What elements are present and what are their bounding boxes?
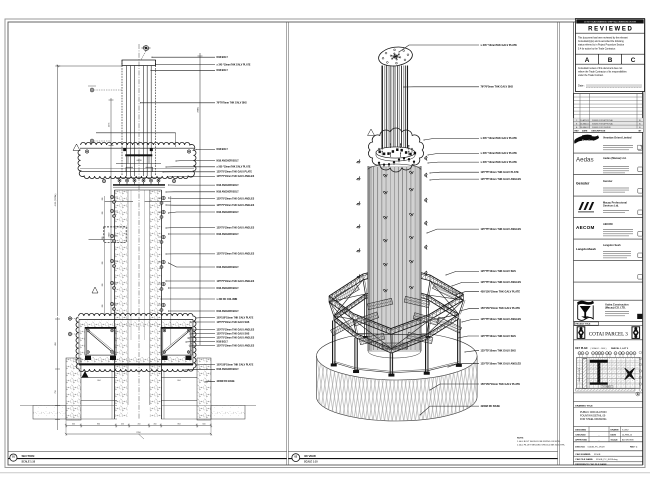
svg-text:125*75*10mm THK GALV ANGLES: 125*75*10mm THK GALV ANGLES (217, 175, 255, 178)
svg-text:DO NOT SCALE DRAWINGS. VERIFY: DO NOT SCALE DRAWINGS. VERIFY ALL DIMENS… (584, 20, 637, 23)
svg-text:4-M16: 4-M16 (136, 160, 141, 162)
svg-text:SL: SL (639, 123, 641, 125)
svg-text:Gensler: Gensler (576, 182, 590, 186)
svg-text:125*75*10mm THK GALV ANGLES: 125*75*10mm THK GALV ANGLES (217, 344, 255, 347)
svg-text:LangdonSeah: LangdonSeah (576, 247, 596, 251)
svg-text:KEY PLAN: KEY PLAN (575, 347, 587, 350)
svg-text:864: 864 (97, 380, 100, 382)
svg-text:150*150*10mm THK GALV PLATE: 150*150*10mm THK GALV PLATE (217, 363, 254, 366)
svg-text:PUBLIC CIRCULATION: PUBLIC CIRCULATION (580, 411, 607, 414)
svg-text:CAD NUMBER:: CAD NUMBER: (575, 453, 591, 456)
svg-text:M16 ANCHOR BOLT: M16 ANCHOR BOLT (217, 266, 240, 269)
svg-text:M16 ANCHOR BOLT: M16 ANCHOR BOLT (217, 310, 240, 313)
svg-text:5150B_PC_8V09: 5150B_PC_8V09 (588, 447, 606, 449)
svg-text:450: 450 (55, 342, 57, 345)
svg-text:FOR STEEL DRAWING: FOR STEEL DRAWING (580, 418, 607, 421)
svg-text:125*75*10mm THK GALV ANGLES: 125*75*10mm THK GALV ANGLES (481, 363, 522, 366)
svg-text:125*75*10mm THK GALV PLATE: 125*75*10mm THK GALV PLATE (217, 171, 253, 174)
svg-text:125*75*10mm THK GALV ANGLES: 125*75*10mm THK GALV ANGLES (217, 197, 255, 200)
svg-text:ISSUED FOR APPROVAL: ISSUED FOR APPROVAL (592, 122, 613, 125)
svg-text:ISSUED FOR APPROVAL: ISSUED FOR APPROVAL (592, 119, 613, 122)
svg-text:M16 ANCHOR BOLT: M16 ANCHOR BOLT (217, 287, 240, 290)
svg-text:125*75*10mm THK GALV ANGLES: 125*75*10mm THK GALV ANGLES (217, 336, 255, 339)
svg-text:(TBB): (TBB) (198, 107, 200, 113)
svg-text:SCALE: SCALE (611, 439, 619, 442)
svg-text:Venetian Orient Limited: Venetian Orient Limited (603, 135, 632, 139)
svg-text:M16 ANCHOR BOLT: M16 ANCHOR BOLT (217, 233, 240, 236)
svg-text:2. ALL FILLET WELDED SHOULD BE: 2. ALL FILLET WELDED SHOULD BE 3mm THK. (517, 444, 565, 447)
svg-text:x 500 *10mmTHK GALV PLATE: x 500 *10mmTHK GALV PLATE (217, 166, 251, 169)
svg-text:125*75*10mm THK GALV ANGLES: 125*75*10mm THK GALV ANGLES (481, 318, 522, 321)
svg-text:COTAI PARCEL 3: COTAI PARCEL 3 (589, 332, 629, 338)
svg-text:x 345 *10mmTHK GALV PLATE: x 345 *10mmTHK GALV PLATE (481, 152, 518, 155)
svg-text:1175: 1175 (109, 122, 111, 127)
svg-text:Consultant(s)(s) and is accord: Consultant(s)(s) and is accorded the fol… (578, 40, 624, 43)
svg-text:200: 200 (102, 284, 104, 287)
svg-text:125*75*10mm THK GALV ANGLES: 125*75*10mm THK GALV ANGLES (481, 281, 522, 284)
svg-text:150*150*10mm THK GALV PLATE: 150*150*10mm THK GALV PLATE (217, 316, 254, 319)
svg-text:26-MAR-15: 26-MAR-15 (580, 122, 589, 125)
svg-text:Services Ltd.: Services Ltd. (603, 204, 619, 208)
svg-text:-: - (599, 434, 600, 436)
svg-text:200: 200 (102, 237, 104, 240)
svg-text:600: 600 (203, 424, 206, 426)
svg-text:125*75*10mm THK GALV ANGLES: 125*75*10mm THK GALV ANGLES (217, 253, 255, 256)
svg-text:450*150*10mm THK GALV PLATE: 450*150*10mm THK GALV PLATE (481, 291, 521, 294)
svg-text:SCALE 1:10: SCALE 1:10 (22, 460, 36, 463)
svg-text:125*75*10mm THK GALV ANGLES: 125*75*10mm THK GALV ANGLES (481, 228, 522, 231)
svg-text:5150B: 5150B (594, 454, 601, 456)
svg-text:450: 450 (121, 424, 124, 426)
svg-text:REV: C: REV: C (630, 447, 638, 449)
svg-text:10-APR-15: 10-APR-15 (580, 119, 589, 122)
svg-text:REFERENCE CAD FILE NAME: REFERENCE CAD FILE NAME (575, 463, 607, 466)
svg-text:AS SHOWN: AS SHOWN (622, 439, 634, 442)
svg-text:M16 BOLT: M16 BOLT (217, 341, 229, 343)
svg-text:Aedas: Aedas (576, 157, 594, 164)
svg-text:125*75*10mm THK GALV ANGLES: 125*75*10mm THK GALV ANGLES (217, 280, 255, 283)
svg-text:125*75*10mm THK GALV SHS: 125*75*10mm THK GALV SHS (481, 335, 517, 338)
svg-text:NOTE:: NOTE: (517, 438, 524, 440)
svg-text:450: 450 (154, 424, 157, 426)
svg-text:CAD FILE NAME:: CAD FILE NAME: (575, 458, 593, 461)
svg-text:864: 864 (178, 424, 181, 426)
svg-text:200: 200 (102, 305, 104, 308)
svg-text:600: 600 (72, 424, 75, 426)
svg-text:PARCEL 1, LOT 1: PARCEL 1, LOT 1 (578, 368, 581, 382)
svg-text:DESIGNED: DESIGNED (575, 429, 586, 431)
svg-text:APPROVED: APPROVED (575, 439, 587, 442)
svg-text:M16 ANCHOR BOLT: M16 ANCHOR BOLT (217, 191, 240, 194)
svg-text:125*75*10mm THK GALV SHS: 125*75*10mm THK GALV SHS (217, 332, 250, 335)
svg-text:status referred to in Project: status referred to in Project Procedure … (578, 44, 625, 47)
svg-text:FOUNTAIN DETAIL 09: FOUNTAIN DETAIL 09 (580, 414, 606, 417)
svg-text:M16 ANCHOR BOLT: M16 ANCHOR BOLT (217, 184, 240, 187)
svg-text:4100 (TOTAL): 4100 (TOTAL) (54, 193, 57, 206)
svg-text:Aedas (Macau) Ltd.: Aedas (Macau) Ltd. (603, 156, 627, 160)
svg-text:x 300 RC COLUMN: x 300 RC COLUMN (217, 299, 238, 301)
svg-text:18-MAR-15: 18-MAR-15 (580, 126, 589, 129)
svg-text:SL: SL (639, 120, 641, 122)
svg-text:x 345 *10mmTHK GALV PLATE: x 345 *10mmTHK GALV PLATE (481, 44, 518, 47)
svg-text:DWG NO:: DWG NO: (575, 447, 585, 449)
svg-text:125*75*10mm THK GALV ANGLES: 125*75*10mm THK GALV ANGLES (217, 204, 255, 207)
svg-text:AECOM: AECOM (603, 222, 612, 226)
svg-text:SCALE 1:10: SCALE 1:10 (304, 460, 318, 463)
svg-text:M16 BOLT: M16 BOLT (217, 57, 229, 59)
svg-text:S.LWU: S.LWU (622, 429, 629, 431)
svg-text:5.4 for action by the Trade Co: 5.4 for action by the Trade Contractor. (578, 47, 616, 50)
svg-text:-: - (599, 440, 600, 442)
svg-text:125*75*10mm THK GALV SHS: 125*75*10mm THK GALV SHS (217, 321, 250, 324)
svg-text:(Macau) CO. LTD.: (Macau) CO. LTD. (605, 307, 626, 310)
svg-text:AECOM: AECOM (576, 225, 595, 230)
svg-text:( SCALE 1 : 1000 ): ( SCALE 1 : 1000 ) (591, 347, 607, 350)
svg-text:Consultant review of this docu: Consultant review of this document does … (578, 67, 623, 70)
svg-text:864: 864 (97, 424, 100, 426)
svg-text:Venetian: Venetian (582, 139, 594, 143)
svg-text:125*75*10mm THK GALV SHS: 125*75*10mm THK GALV SHS (481, 270, 517, 273)
svg-text:M16 ANCHOR BOLT: M16 ANCHOR BOLT (217, 159, 240, 162)
svg-text:76*76*5mm THK GALV SHS: 76*76*5mm THK GALV SHS (217, 102, 248, 105)
svg-text:x 345 *10mmTHK GALV PLATE: x 345 *10mmTHK GALV PLATE (217, 63, 251, 66)
svg-text:14-FEB-15: 14-FEB-15 (622, 434, 633, 436)
svg-text:DRAWN: DRAWN (611, 428, 619, 431)
svg-text:x 345 *10mmTHK GALV PLATE: x 345 *10mmTHK GALV PLATE (481, 137, 518, 140)
svg-text:125*75*10mm THK GALV PLATE: 125*75*10mm THK GALV PLATE (481, 171, 519, 174)
svg-text:M16 BOLT: M16 BOLT (217, 70, 229, 72)
svg-text:125*75*10mm THK GALV ANGLES: 125*75*10mm THK GALV ANGLES (217, 226, 255, 229)
svg-text:DRAWING TITLE: DRAWING TITLE (575, 404, 593, 407)
svg-text:150*150*10mm THK GALV PLATE: 150*150*10mm THK GALV PLATE (481, 383, 521, 386)
svg-text:750: 750 (55, 390, 57, 393)
svg-text:3D VIEW: 3D VIEW (304, 454, 316, 458)
svg-text:1. ALL BOLT SHOULD BE FIXING O: 1. ALL BOLT SHOULD BE FIXING ON SITE. (517, 440, 561, 443)
svg-text:4200Ø RC BASE: 4200Ø RC BASE (217, 380, 236, 383)
svg-text:SECTION: SECTION (22, 454, 35, 458)
svg-text:200: 200 (102, 212, 104, 215)
svg-text:Langdon Seah: Langdon Seah (603, 243, 621, 247)
svg-text:150*150*10mm THK GALV PLATE: 150*150*10mm THK GALV PLATE (481, 307, 521, 310)
svg-text:864: 864 (177, 380, 180, 382)
svg-text:4200Ø RC BASE: 4200Ø RC BASE (481, 405, 501, 408)
svg-text:125*75*10mm THK GALV ANGLES: 125*75*10mm THK GALV ANGLES (481, 178, 522, 181)
svg-text:200: 200 (102, 198, 104, 201)
svg-text:76*76*5mm THK GALV SHS: 76*76*5mm THK GALV SHS (481, 86, 514, 89)
svg-text:ISSUED FOR REVIEW: ISSUED FOR REVIEW (592, 127, 611, 129)
svg-text:200: 200 (102, 262, 104, 265)
svg-text:SL: SL (639, 127, 641, 129)
svg-text:B: B (608, 57, 613, 64)
svg-text:M16 ANCHOR BOLT: M16 ANCHOR BOLT (217, 368, 240, 371)
svg-text:This document has been reviewe: This document has been reviewed by the r… (578, 37, 628, 40)
svg-text:PROJECT TITLE: PROJECT TITLE (576, 324, 591, 326)
svg-text:CHECKED: CHECKED (575, 434, 586, 436)
svg-text:R E V I E W E D: R E V I E W E D (588, 27, 632, 33)
svg-text:Date :: Date : (578, 84, 585, 88)
svg-text:Gensler: Gensler (603, 179, 613, 183)
svg-text:x 345 *10mmTHK GALV PLATE: x 345 *10mmTHK GALV PLATE (481, 161, 518, 164)
svg-text:125*75*10mm THK GALV SHS: 125*75*10mm THK GALV SHS (481, 350, 517, 353)
svg-text:PARCEL 1, LOT 2: PARCEL 1, LOT 2 (611, 347, 629, 350)
svg-text:under the Trade Contract.: under the Trade Contract. (578, 74, 604, 77)
svg-text:DATE: DATE (611, 433, 617, 436)
svg-text:A: A (585, 57, 590, 64)
svg-text:M16 BOLT: M16 BOLT (217, 149, 229, 151)
svg-text:M16 ANCHOR BOLT: M16 ANCHOR BOLT (217, 211, 240, 214)
svg-text:5150B_PC_8V09.dwg: 5150B_PC_8V09.dwg (596, 459, 618, 461)
svg-text:C: C (631, 57, 636, 64)
svg-text:125*75*10mm THK GALV ANGLES: 125*75*10mm THK GALV ANGLES (217, 328, 255, 331)
svg-text:relieve the Trade Contractor o: relieve the Trade Contractor of its resp… (578, 70, 628, 73)
svg-text:450: 450 (138, 424, 141, 426)
